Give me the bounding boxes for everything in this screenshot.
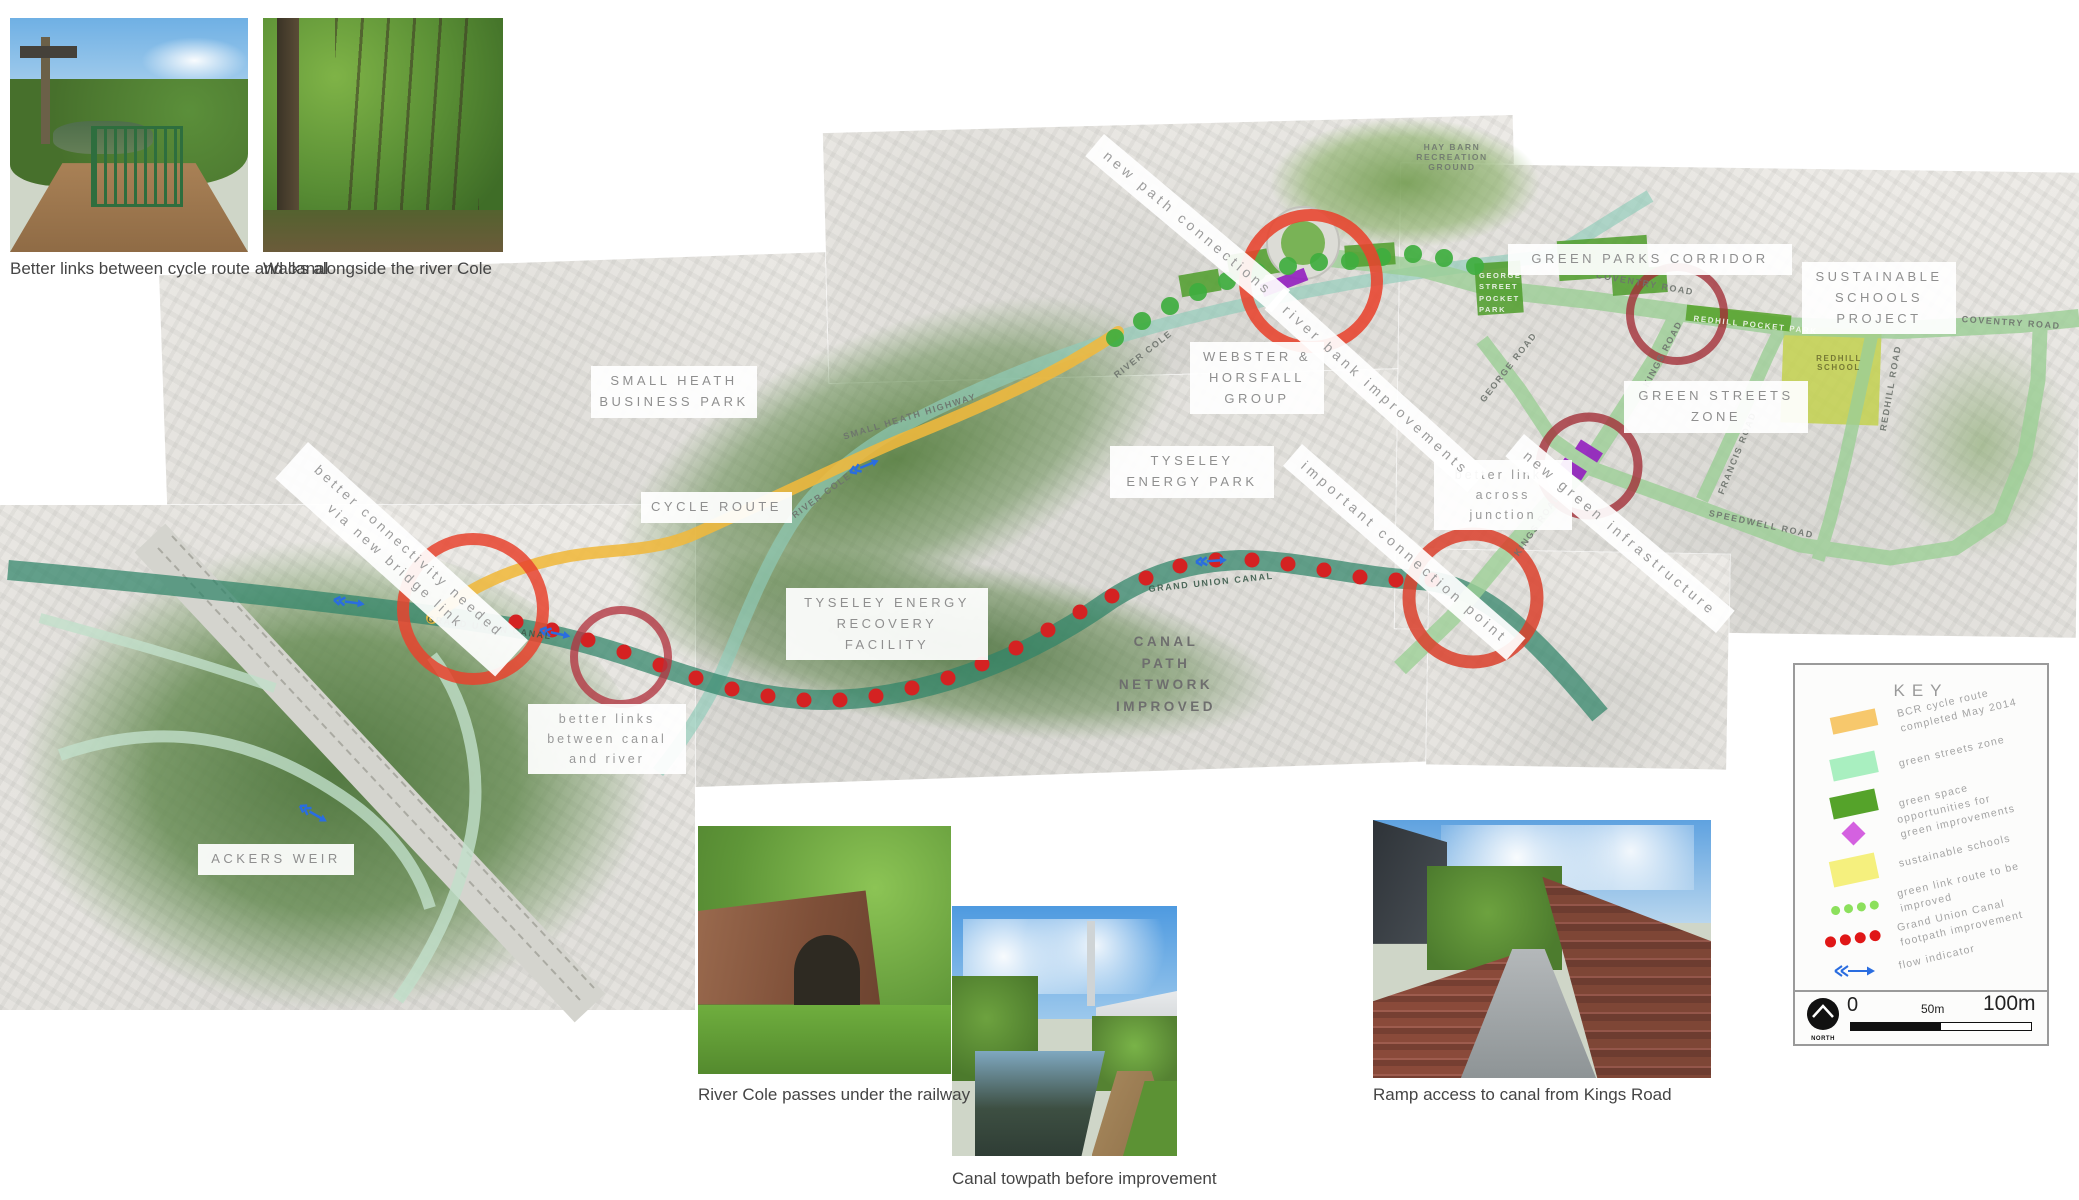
key-swatch-sustainable-schools [1829,853,1879,888]
photo-river-cole-walk [263,18,503,252]
key-swatch-flow-arrow [1833,963,1877,984]
label-green-streets-zone: GREEN STREETS ZONE [1624,381,1808,433]
label-green-parks-corridor: GREEN PARKS CORRIDOR [1508,244,1792,275]
east-greenery-patch [1890,330,2075,560]
north-arrow-icon [1806,997,1840,1031]
label-hay-barn-recreation-ground: HAY BARN RECREATION GROUND [1392,142,1512,172]
photo-ground [263,210,503,252]
scale-bar-panel: NORTH 0 50m 100m [1793,990,2049,1046]
photo-chimney [1087,921,1095,1006]
label-tyseley-energy-recovery-facility: TYSELEY ENERGY RECOVERY FACILITY [786,588,988,660]
hay-barn-park-patch [1270,118,1540,248]
scale-bar [1850,1022,2032,1031]
map-key: KEY BCR cycle route completed May 2014 g… [1793,663,2049,992]
masterplan-page: COVENTRY ROAD COVENTRY ROAD KINGS ROAD K… [0,0,2079,1200]
photo-canal-towpath [952,906,1177,1156]
scale-mid: 50m [1921,1002,1944,1016]
caption-bottom-photo-2: Canal towpath before improvement [952,1168,1252,1190]
photo-gate [91,126,183,207]
key-swatch-green-link-dots [1830,895,1884,920]
label-cycle-route: CYCLE ROUTE [641,492,792,523]
label-george-street-pocket-park: GEORGE STREET POCKET PARK [1479,270,1521,315]
label-webster-horsfall-group: WEBSTER & HORSFALL GROUP [1190,342,1324,414]
label-tyseley-energy-park: TYSELEY ENERGY PARK [1110,446,1274,498]
label-sustainable-schools-project: SUSTAINABLE SCHOOLS PROJECT [1802,262,1956,334]
scale-max: 100m [1983,992,2036,1016]
north-label: NORTH [1803,1036,1843,1042]
scale-zero: 0 [1847,994,1858,1017]
key-swatch-green-space [1829,788,1879,819]
label-small-heath-business-park: SMALL HEATH BUSINESS PARK [591,366,757,418]
caption-bottom-photo-3: Ramp access to canal from Kings Road [1373,1084,1713,1106]
photo-cycle-route-gate [10,18,248,252]
caption-top-photo-2: Walks alongside the river Cole [263,258,563,280]
key-swatch-canal-footpath-dots [1824,927,1886,953]
label-canal-path-network-improved: CANAL PATH NETWORK IMPROVED [1098,626,1234,722]
label-ackers-weir: ACKERS WEIR [198,844,354,875]
flow-arrow-icon [1833,963,1877,979]
label-redhill-school: REDHILL SCHOOL [1812,354,1866,372]
caption-bottom-photo-1: River Cole passes under the railway [698,1084,998,1106]
key-swatch-green-improvements [1841,821,1865,845]
photo-cloud [141,37,248,84]
photo-grass [698,1005,951,1074]
north-arrow: NORTH [1803,997,1843,1042]
key-swatch-green-streets [1829,750,1879,781]
photo-signpost-arm [20,46,77,58]
photo-river-cole-railway-bridge [698,826,951,1074]
annotation-better-links-canal-river: better links between canal and river [528,704,686,774]
photo-kings-road-ramp [1373,820,1711,1078]
photo-trunks-thin [335,18,479,217]
photo-bridge-arch [794,935,860,1009]
key-swatch-cycle-route [1830,708,1879,734]
